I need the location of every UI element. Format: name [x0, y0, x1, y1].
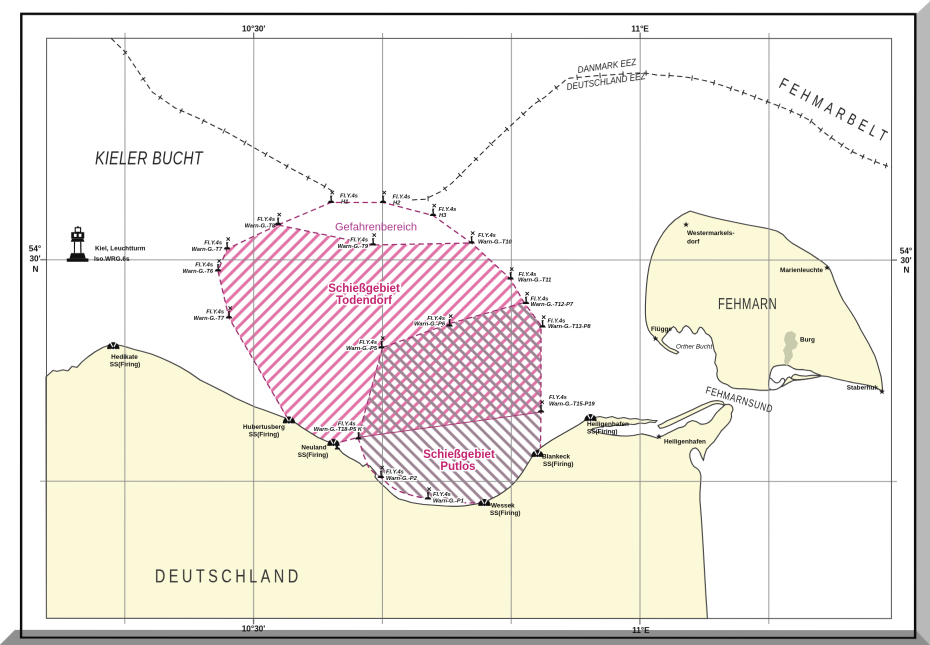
svg-text:Marienleuchte: Marienleuchte — [780, 267, 823, 274]
svg-text:Flügge: Flügge — [651, 326, 672, 333]
svg-text:Warn-G.-T12-P7: Warn-G.-T12-P7 — [531, 302, 574, 308]
svg-text:Schießgebiet: Schießgebiet — [328, 283, 400, 295]
svg-text:N: N — [33, 265, 39, 274]
svg-text:Warn-G.-P1: Warn-G.-P1 — [433, 498, 464, 504]
svg-text:H2: H2 — [393, 200, 401, 206]
svg-text:Warn-G.-P2: Warn-G.-P2 — [386, 476, 418, 482]
svg-text:Fl.Y.4s: Fl.Y.4s — [478, 233, 496, 239]
svg-text:Putlos: Putlos — [440, 461, 475, 473]
svg-text:SS(Firing): SS(Firing) — [587, 429, 618, 436]
svg-text:Schießgebiet: Schießgebiet — [423, 449, 495, 461]
svg-text:dorf: dorf — [687, 239, 700, 246]
svg-text:H3: H3 — [439, 213, 447, 219]
svg-text:54°: 54° — [900, 247, 912, 256]
svg-text:Burg: Burg — [800, 337, 815, 344]
svg-text:KIELER BUCHT: KIELER BUCHT — [95, 147, 204, 168]
svg-text:SS(Firing): SS(Firing) — [543, 461, 574, 468]
svg-text:N: N — [904, 266, 910, 275]
svg-text:Westermarkels-: Westermarkels- — [687, 230, 734, 237]
svg-text:Warn-G.-T18-P5 K: Warn-G.-T18-P5 K — [314, 427, 363, 433]
svg-text:Warn-G.-T8: Warn-G.-T8 — [244, 223, 275, 229]
svg-text:Warn-G.-T10: Warn-G.-T10 — [478, 240, 513, 246]
svg-text:Iso.WRG.6s: Iso.WRG.6s — [94, 256, 130, 263]
svg-text:Hubertusberg: Hubertusberg — [243, 424, 285, 431]
svg-text:SS(Firing): SS(Firing) — [110, 361, 141, 368]
svg-text:Staberhuk: Staberhuk — [847, 385, 879, 392]
svg-text:Neuland: Neuland — [301, 444, 326, 451]
svg-text:Fl.Y.4s: Fl.Y.4s — [206, 309, 224, 315]
svg-text:Warn-G.-T13-P8: Warn-G.-T13-P8 — [548, 324, 591, 330]
svg-text:Warn-G.-P6: Warn-G.-P6 — [414, 321, 446, 327]
svg-text:Fl.Y.4s: Fl.Y.4s — [257, 217, 275, 223]
svg-text:SS(Firing): SS(Firing) — [490, 510, 521, 517]
svg-text:Warn-G.-T15-P19: Warn-G.-T15-P19 — [549, 402, 596, 408]
svg-text:30': 30' — [900, 256, 911, 265]
svg-text:Orther Bucht: Orther Bucht — [676, 344, 712, 351]
svg-text:Fl.Y.4s: Fl.Y.4s — [433, 492, 451, 498]
svg-text:Fl.Y.4s: Fl.Y.4s — [350, 237, 368, 243]
svg-text:Warn-G.-T7: Warn-G.-T7 — [193, 316, 224, 322]
svg-text:10°30': 10°30' — [242, 624, 265, 633]
svg-text:Gefahrenbereich: Gefahrenbereich — [335, 221, 417, 233]
svg-text:Fl.Y.4s: Fl.Y.4s — [386, 469, 404, 475]
svg-text:Warn-G.-P5: Warn-G.-P5 — [346, 346, 378, 352]
svg-text:Warn-G.-T9: Warn-G.-T9 — [337, 244, 368, 250]
svg-text:11°E: 11°E — [631, 25, 649, 34]
svg-text:Kiel, Leuchtturm: Kiel, Leuchtturm — [95, 245, 146, 252]
svg-text:Blankeck: Blankeck — [542, 454, 571, 461]
svg-text:H1: H1 — [341, 199, 348, 205]
svg-text:Warn-G.-T7: Warn-G.-T7 — [191, 247, 222, 253]
svg-text:Hedikate: Hedikate — [111, 354, 138, 361]
svg-text:Todendorf: Todendorf — [336, 295, 392, 307]
svg-text:Fl.Y.4s: Fl.Y.4s — [195, 262, 213, 268]
svg-text:FEHMARN: FEHMARN — [718, 294, 777, 313]
svg-text:Warn-G.-T11: Warn-G.-T11 — [518, 278, 551, 284]
svg-text:SS(Firing): SS(Firing) — [298, 452, 329, 459]
svg-text:SS(Firing): SS(Firing) — [249, 431, 280, 438]
svg-text:54°: 54° — [29, 244, 41, 253]
svg-text:Heiligenhafen: Heiligenhafen — [664, 439, 706, 446]
svg-text:Fl.Y.4s: Fl.Y.4s — [549, 395, 567, 401]
svg-text:Warn-G.-T6: Warn-G.-T6 — [182, 269, 213, 275]
svg-text:10°30': 10°30' — [242, 24, 265, 33]
svg-text:30': 30' — [29, 254, 40, 263]
svg-text:Heiligenhafen: Heiligenhafen — [587, 421, 629, 428]
svg-text:Wessek: Wessek — [491, 503, 515, 510]
svg-text:11°E: 11°E — [632, 626, 650, 635]
svg-text:DEUTSCHLAND: DEUTSCHLAND — [155, 566, 302, 587]
svg-text:Fl.Y.4s: Fl.Y.4s — [204, 240, 222, 246]
